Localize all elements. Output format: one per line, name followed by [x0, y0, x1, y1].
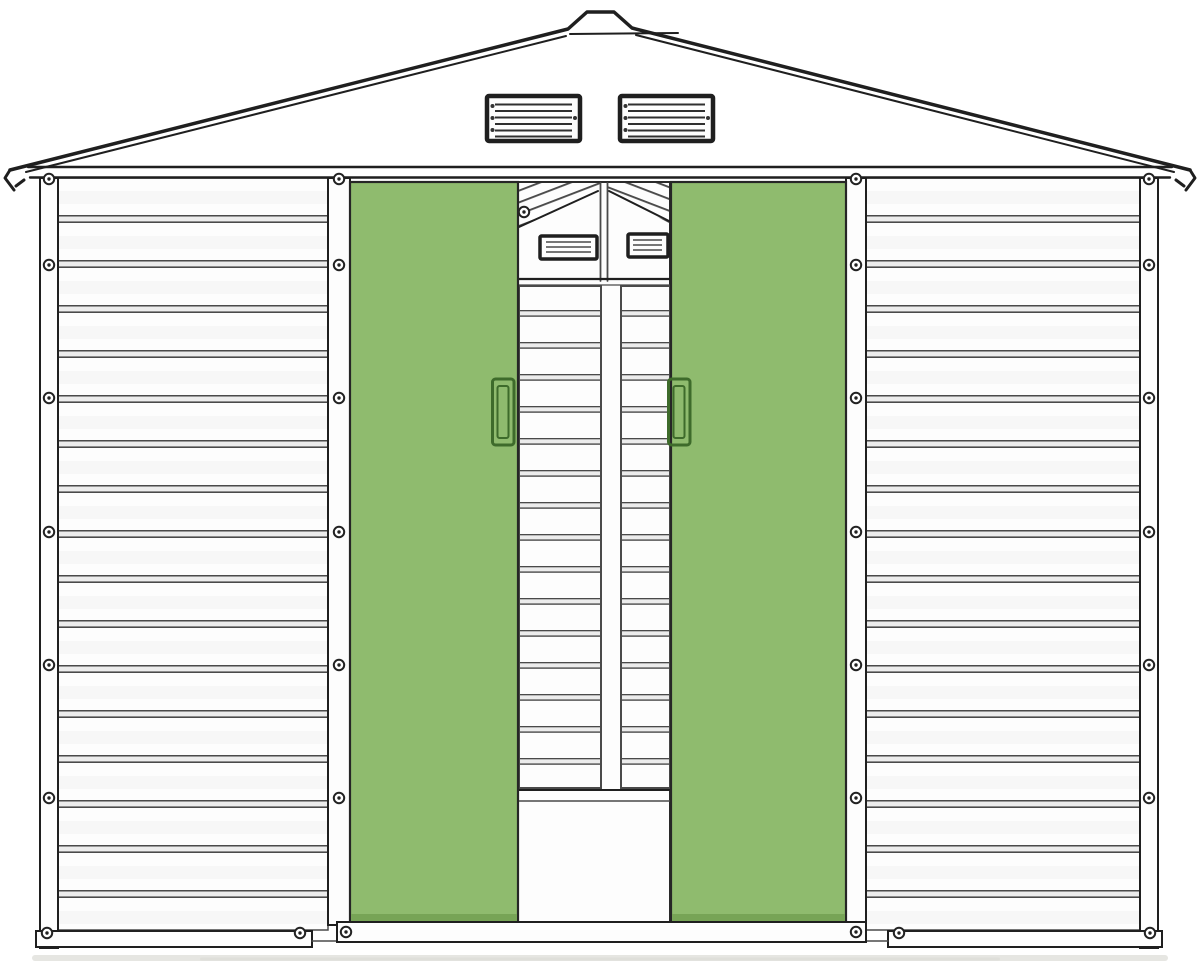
- door-bottom-track: [337, 922, 866, 942]
- screw: [334, 793, 344, 803]
- sliding-door-left: [350, 182, 518, 925]
- screw: [341, 927, 351, 937]
- screw: [1145, 928, 1155, 938]
- screw: [1144, 260, 1154, 270]
- screw: [851, 174, 861, 184]
- shed-illustration-canvas: [0, 0, 1200, 972]
- inner-door-vent-left: [540, 236, 597, 259]
- garden-shed-front-elevation: [0, 0, 1200, 972]
- screw: [1144, 527, 1154, 537]
- eave-drip-edge-left: [5, 170, 24, 190]
- eave-drip-edge-right: [1176, 170, 1195, 190]
- gable-vent-left: [487, 96, 580, 141]
- screw: [851, 393, 861, 403]
- roof: [5, 12, 1195, 190]
- ground: [32, 955, 1168, 961]
- gable-vent-right: [620, 96, 713, 141]
- screw: [1144, 793, 1154, 803]
- inner-door-right-ribbed-panel: [621, 286, 670, 788]
- eave-band-lines: [28, 167, 1172, 178]
- roof-inner-slope-lines: [26, 35, 1174, 172]
- screw: [851, 660, 861, 670]
- screw: [334, 260, 344, 270]
- screw: [44, 527, 54, 537]
- left-wall-inner-frame-rail: [328, 178, 350, 925]
- screw: [851, 260, 861, 270]
- screw: [44, 260, 54, 270]
- right-wall-corrugated-panel: [866, 178, 1140, 930]
- left-wall-corrugated-panel: [58, 178, 328, 930]
- screw: [851, 793, 861, 803]
- right-wall-outer-frame-rail: [1140, 178, 1158, 948]
- screw: [894, 928, 904, 938]
- sliding-door-left-panel: [350, 182, 518, 925]
- screw: [851, 927, 861, 937]
- screw: [334, 660, 344, 670]
- interior-door-column: [518, 182, 670, 925]
- base-rail-left: [36, 931, 312, 947]
- screw: [1144, 174, 1154, 184]
- left-wall-outer-frame-rail: [40, 178, 58, 948]
- screw: [334, 393, 344, 403]
- left-wall: [40, 178, 350, 948]
- inner-door-vent-right: [628, 234, 668, 257]
- base-rail-right: [888, 931, 1162, 947]
- screw: [334, 174, 344, 184]
- inner-door-left-ribbed-panel: [519, 286, 601, 788]
- roof-outer-outline: [10, 12, 1190, 170]
- screw: [295, 928, 305, 938]
- ridge-cap-underline: [570, 33, 678, 34]
- screw: [44, 174, 54, 184]
- screw: [334, 527, 344, 537]
- screw: [44, 793, 54, 803]
- screw: [44, 660, 54, 670]
- right-wall-inner-frame-rail: [846, 178, 866, 925]
- screw: [1144, 393, 1154, 403]
- sliding-door-right-panel: [671, 182, 846, 925]
- screw: [851, 527, 861, 537]
- right-wall: [846, 178, 1158, 948]
- screw: [1144, 660, 1154, 670]
- screw: [519, 207, 529, 217]
- screw: [44, 393, 54, 403]
- screw: [42, 928, 52, 938]
- sliding-door-right: [669, 182, 847, 925]
- ground-shadow-inner: [200, 958, 1000, 961]
